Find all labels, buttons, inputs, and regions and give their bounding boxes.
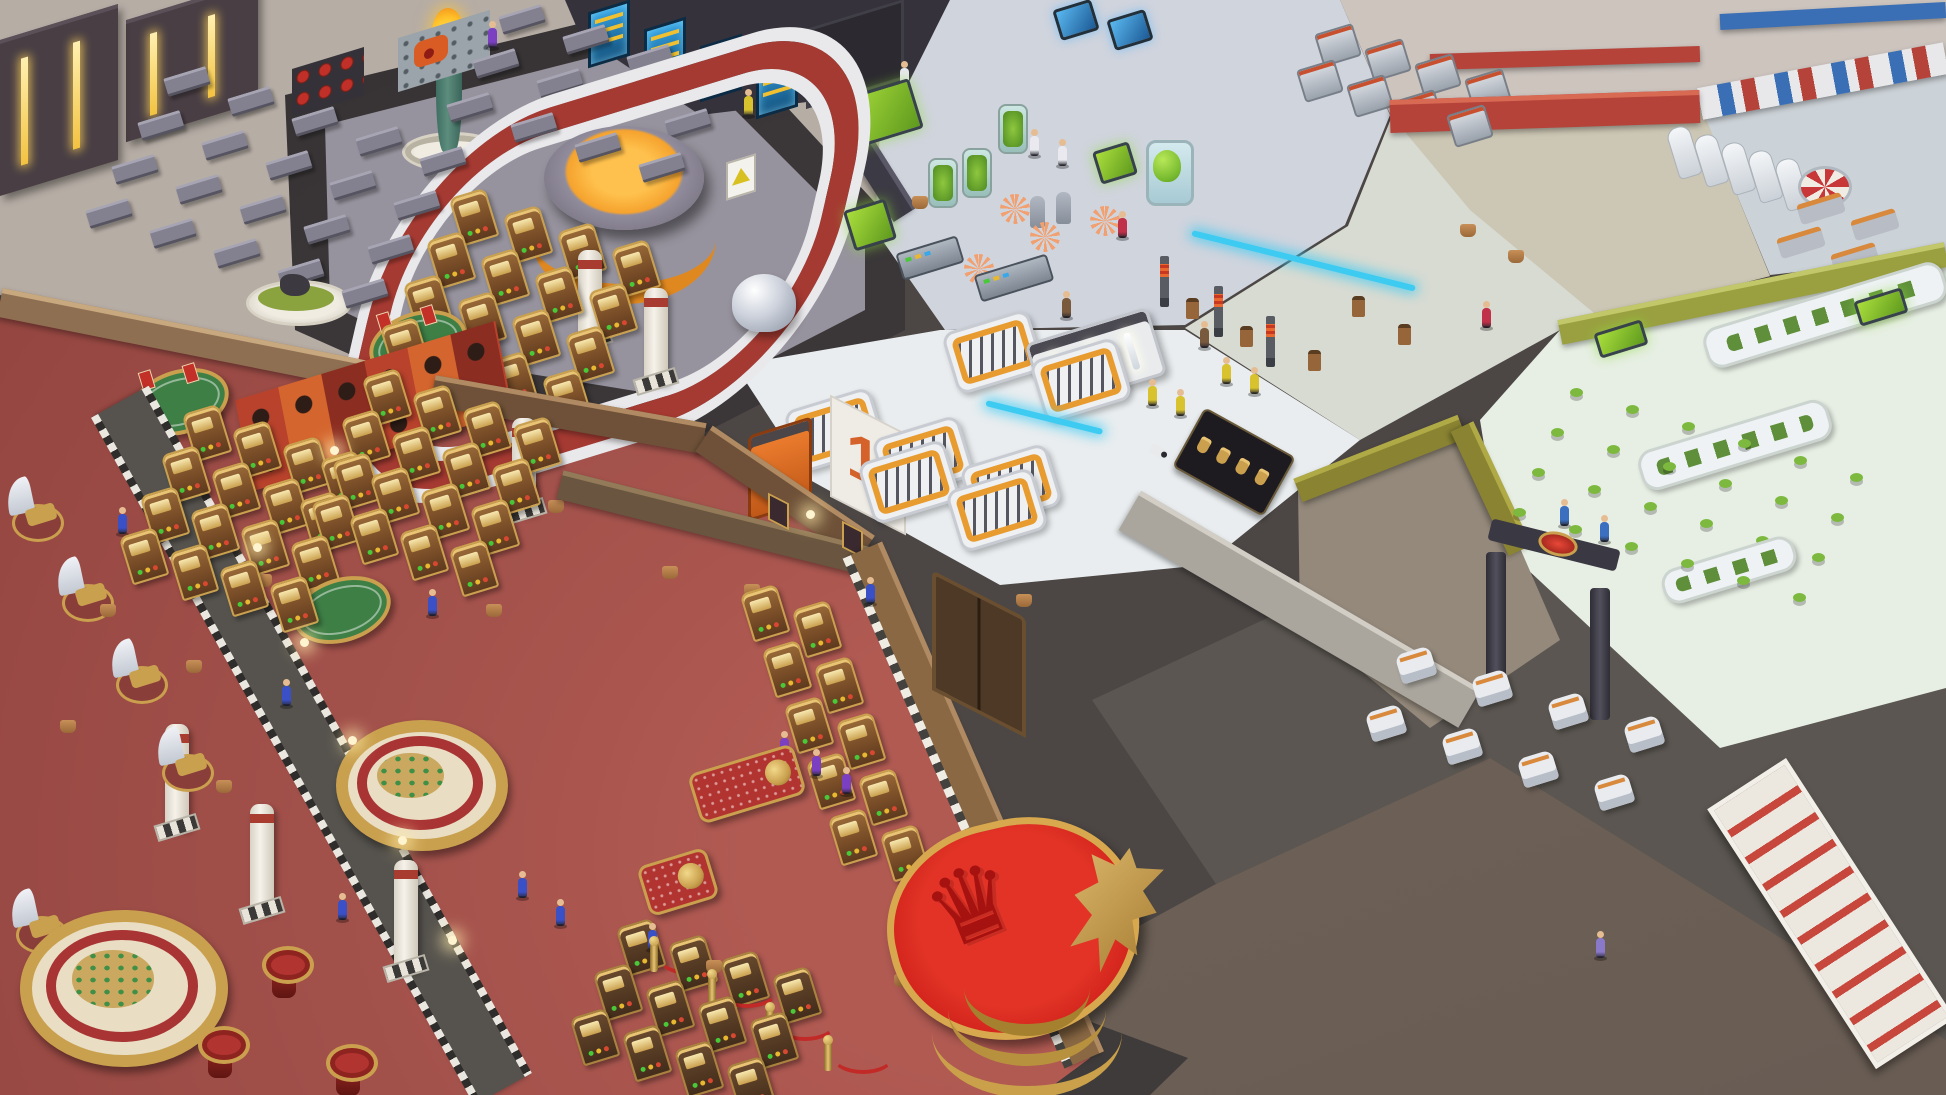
cafeteria-stool[interactable] [1570,388,1583,397]
game-viewport[interactable]: 1♛ [0,0,1946,1095]
character[interactable] [842,774,851,794]
queue-rope-post [822,1035,834,1075]
cafeteria-stool[interactable] [1831,513,1844,522]
coral-specimen [1000,194,1030,224]
character[interactable] [866,584,875,604]
character[interactable] [556,906,565,926]
character[interactable] [1222,364,1231,384]
cafeteria-stool[interactable] [1607,445,1620,454]
cafeteria-stool[interactable] [1532,468,1545,477]
training-post[interactable] [1214,286,1223,337]
specimen-tank[interactable] [998,104,1028,154]
potted-plant [1006,570,1042,608]
character[interactable] [1062,298,1071,318]
cafeteria-stool[interactable] [1850,473,1863,482]
cafeteria-stool[interactable] [1625,542,1638,551]
roulette-wheel-stand[interactable] [198,1026,242,1084]
column-pillar [644,288,668,383]
card-dealer-table[interactable] [108,640,168,704]
character[interactable] [1596,938,1605,958]
card-dealer-table[interactable] [154,728,214,792]
brain-specimen-tube[interactable] [1146,140,1194,206]
coral-specimen [1030,222,1060,252]
cafeteria-stool[interactable] [1551,428,1564,437]
training-post[interactable] [1266,316,1275,367]
character[interactable] [1250,374,1259,394]
gold-smelter-crucible[interactable] [544,126,704,230]
character[interactable] [1176,396,1185,416]
lab-dome-device[interactable] [732,274,796,332]
wall-sconce [348,736,357,745]
character[interactable] [744,96,753,116]
potted-plant [206,756,242,794]
potted-plant [476,580,512,618]
cafeteria-stool[interactable] [1682,422,1695,431]
specimen-tank[interactable] [962,148,992,198]
character[interactable] [488,28,497,48]
potted-plant [176,636,212,674]
column-pillar [394,860,418,970]
wall-sconce [448,936,457,945]
character[interactable] [1058,146,1067,166]
cafeteria-stool[interactable] [1644,502,1657,511]
potted-plant [652,542,688,580]
queue-rope-post [648,936,660,976]
character[interactable] [118,514,127,534]
wall-sconce [300,638,309,647]
rock-planter-island [246,280,346,324]
roulette-wheel-stand[interactable] [262,946,306,1004]
cafeteria-stool[interactable] [1681,559,1694,568]
cafeteria-stool[interactable] [1719,479,1732,488]
cafeteria-stool[interactable] [1663,462,1676,471]
training-bot[interactable] [1186,298,1199,319]
cafeteria-stool[interactable] [1569,525,1582,534]
character[interactable] [1118,218,1127,238]
cafeteria-stool[interactable] [1737,576,1750,585]
character[interactable] [1200,328,1209,348]
character[interactable] [282,686,291,706]
character[interactable] [1148,386,1157,406]
cafeteria-stool[interactable] [1775,496,1788,505]
cafeteria-stool[interactable] [1626,405,1639,414]
column-pillar [250,804,274,912]
character[interactable] [1482,308,1491,328]
wall-sconce [398,836,407,845]
grey-mannequin [1056,192,1071,224]
potted-plant [1450,200,1486,238]
character[interactable] [428,596,437,616]
wall-lamp [806,510,815,519]
wall-sconce [330,446,339,455]
potted-plant [902,172,938,210]
training-bot[interactable] [1308,350,1321,371]
cafeteria-stool[interactable] [1738,439,1751,448]
cafeteria-stool[interactable] [1794,456,1807,465]
potted-plant [50,696,86,734]
character[interactable] [518,878,527,898]
potted-plant [1498,226,1534,264]
training-bot[interactable] [1398,324,1411,345]
character[interactable] [1600,522,1609,542]
training-bot[interactable] [1352,296,1365,317]
cafeteria-stool[interactable] [1793,593,1806,602]
training-bot[interactable] [1240,326,1253,347]
cafeteria-stool[interactable] [1588,485,1601,494]
coral-specimen [1090,206,1120,236]
character[interactable] [338,900,347,920]
training-post[interactable] [1160,256,1169,307]
card-dealer-table[interactable] [4,478,64,542]
character[interactable] [812,756,821,776]
potted-plant [90,580,126,618]
roulette-wheel-stand[interactable] [326,1044,370,1095]
cafeteria-stool[interactable] [1812,553,1825,562]
character[interactable] [1030,136,1039,156]
cafeteria-stool[interactable] [1700,519,1713,528]
